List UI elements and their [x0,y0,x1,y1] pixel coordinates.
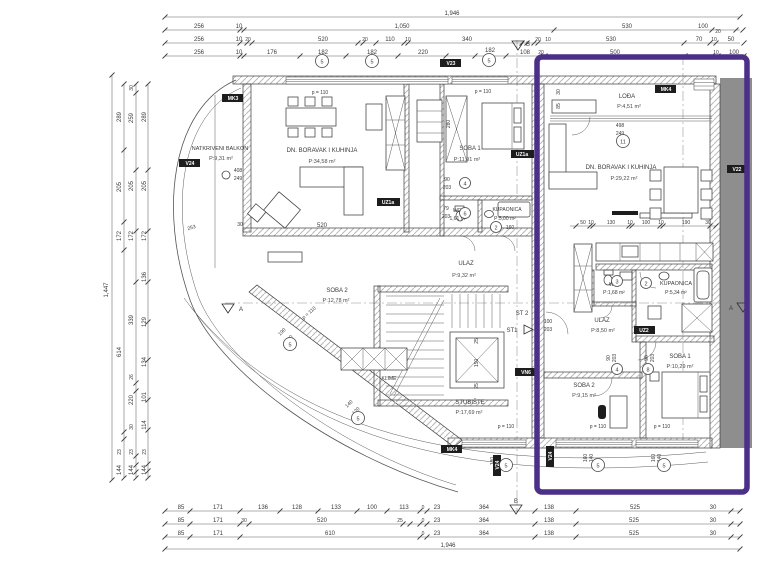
wardrobe [386,96,405,170]
dim-label: 10 [236,24,243,30]
room-area: P:12,78 m² [323,298,350,304]
dim-label: 10 [545,37,551,43]
dim-label: 520 [318,37,329,43]
room-name: DN. BORAVAK I KUHINJA [586,165,657,171]
dim-label: 23 [117,449,123,455]
svg-text:5: 5 [487,59,490,65]
ref-circle: 5 [316,55,329,68]
bottom-dimension-labels: 85 171 136 128 133 100 113 0 23 364 138 … [178,505,717,549]
svg-text:MK4: MK4 [661,87,672,93]
room-label-stubiste: STUBIŠTE P:17,69 m² [455,399,484,416]
room-name: SOBA 1 [459,146,481,152]
room-area: P:1,68 m² [603,290,625,296]
kitchen-dim-labels: 50 10 130 10 100 10 190 30 [580,220,711,226]
dim-label: 23 [129,449,135,455]
parapet-note: p = 110 [475,89,492,95]
dim-label: 408 [234,168,243,174]
inner-annotations: 30 520 408 249 498 249 280 90 203 79 203… [187,89,671,465]
room-area: P:8,50 m² [591,328,615,334]
room-name: ULAZ [594,318,610,324]
ref-circle: 6 [460,208,471,219]
ref-circle: 5 [500,459,513,472]
svg-text:MK4: MK4 [447,447,458,453]
room-name: KUPAONICA [492,207,522,213]
dim-label: 113 [399,505,409,511]
dim-label: 10 [236,50,243,56]
room-name: LOĐA [619,94,635,100]
dim-label: 176 [267,50,278,56]
svg-text:5: 5 [356,417,359,423]
dim-label: 0 [422,531,425,537]
svg-text:2: 2 [494,226,497,232]
ref-circle: 5 [658,459,671,472]
svg-text:A: A [239,307,243,313]
svg-text:A: A [729,306,733,312]
dim-label: 100 [642,220,651,226]
dim-label: 30 [237,222,243,228]
media-bench [640,213,692,218]
dining-table [286,108,336,126]
dim-label: 256 [194,37,205,43]
svg-text:5: 5 [320,60,323,66]
svg-text:B: B [526,42,530,48]
section-marker-a-left: A [222,304,243,313]
dim-label: 280 [446,120,452,129]
tag-mk4-bottom: MK4 [441,445,462,453]
ref-circle: 5 [284,338,297,351]
parapet-note: p = 110 [654,424,671,430]
window [286,77,448,84]
dim-label: 249 [234,176,243,182]
room-area: P:29,22 m² [611,176,638,182]
dim-label: 30 [710,531,717,537]
dim-label: 256 [194,24,205,30]
room-name: ULAZ [458,261,474,267]
dim-label: 23 [434,518,441,524]
dim-label: 144 [117,464,123,475]
dining-table [664,167,698,213]
dim-label: 90 [444,177,450,183]
dim-label: 85 [178,518,185,524]
dim-label: 100 [698,24,709,30]
furniture-left-apartment [248,96,530,262]
room-label-soba2-right: SOBA 2 P:9,15 m² [572,383,596,399]
svg-text:V24: V24 [548,451,554,460]
svg-text:8: 8 [646,368,649,374]
dim-label: 340 [462,37,473,43]
ref-circle: 5 [483,54,496,67]
stair-flight-markers: ST 2 ST1 [506,311,533,334]
dim-label: 133 [331,505,342,511]
dim-label: 30 [710,518,717,524]
dim-label: 10 [627,220,633,226]
room-area: P:5,34 m² [665,290,687,296]
klime-closet [341,348,407,370]
svg-text:3: 3 [615,280,618,286]
tag-uz1a-b: UZ1a [511,150,534,158]
dim-label: 50 [728,37,735,43]
room-name: KUPAONICA [660,281,692,287]
dim-label: 364 [479,518,490,524]
dim-label: 203 [650,354,656,363]
dim-label: 114 [142,420,148,430]
room-name: SOBA 2 [326,288,348,294]
dim-label: 220 [129,394,135,405]
dim-label: 26 [129,374,135,380]
dim-label: 20 [245,37,251,43]
dim-label: 30 [129,424,135,430]
dim-label: 253 [187,224,197,232]
room-label-ulaz-left: ULAZ P:9,32 m² [452,261,476,279]
dim-label: 136 [258,505,269,511]
dim-label: 289 [142,111,148,122]
dim-label: 203 [544,327,553,333]
bed-right [650,372,710,418]
dim-label: 10 [588,220,594,226]
room-area: P:9,31 m² [209,156,233,162]
dim-label: 23 [434,505,441,511]
tag-mk4-top: MK4 [655,85,676,93]
tag-uz1a-a: UZ1a [377,198,400,206]
bed-left [482,103,524,149]
parapet-note: p = 110 [312,90,329,96]
dim-label: 85 [178,505,185,511]
dim-label: 171 [213,531,224,537]
dim-label: 101 [142,391,148,402]
dim-label: 1,946 [440,543,456,549]
dim-label: 50 [580,220,586,226]
room-area: P:5,00 m² [494,216,516,222]
sofa-seat [549,172,597,189]
floor-plan-drawing: 1,946 256 10 1,050 530 100 20 256 10 20 … [0,0,758,564]
dim-label: 70 [696,37,703,43]
left-dimension-labels: 1,447 289 205 172 614 23 144 30 259 205 … [104,85,148,475]
ref-circle: 5 [592,459,605,472]
dim-label: 203 [612,354,618,363]
dim-label: 259 [129,112,135,123]
window [694,79,714,90]
dim-label: 1,447 [104,282,110,298]
svg-text:4: 4 [615,368,618,374]
room-name: DN. BORAVAK I KUHINJA [287,148,358,154]
room-label-soba1-right: SOBA 1 P:10,29 m² [667,354,694,370]
dim-label: 10 [405,37,411,43]
dim-label: 129 [142,316,148,327]
dim-label: 10 [711,37,717,43]
dim-label: 23 [434,531,441,537]
tv-bench [268,252,302,262]
dim-label: 30 [241,518,247,524]
section-marker-b-top: B [512,41,530,50]
svg-text:5: 5 [662,464,665,470]
dim-label: 136 [142,271,148,282]
dim-label: 85 [178,531,185,537]
dim-label: 25 [474,383,480,389]
svg-text:UZ1a: UZ1a [516,152,528,158]
dim-label: 0 [422,505,425,511]
room-name: SOBA 2 [573,383,595,389]
top-dimension-labels: 1,946 256 10 1,050 530 100 20 256 10 20 … [194,11,740,56]
dim-label: 520 [317,518,328,524]
floor-plan-page: 1,946 256 10 1,050 530 100 20 256 10 20 … [0,0,758,564]
room-name: SOBA 1 [669,354,691,360]
dim-label: 190 [682,220,691,226]
svg-text:4: 4 [463,182,466,188]
room-label-ulaz-right: ULAZ P:8,50 m² [591,318,615,334]
hall-closet [574,244,592,312]
dim-label: 205 [129,180,135,191]
dim-label: 10 [658,220,664,226]
room-area: P:17,69 m² [456,410,483,416]
dim-label: 498 [616,123,625,129]
window [636,440,698,447]
dim-label: 25 [397,518,403,524]
svg-text:V22: V22 [733,167,742,173]
window [452,77,508,84]
dim-label: 30 [710,505,717,511]
svg-text:V23: V23 [447,61,456,67]
svg-text:UZ2: UZ2 [639,328,649,334]
svg-text:6: 6 [463,212,466,218]
dim-label: 138 [544,518,555,524]
dim-label: 130 [607,220,616,226]
dim-label: 339 [129,314,135,325]
parapet-note: p = 110 [301,305,318,320]
dim-label: 182 [485,48,496,54]
dim-label: 85 [556,103,562,109]
svg-text:5: 5 [370,60,373,66]
room-label-klime: KLIME [381,376,397,382]
ref-circle: 5 [352,412,365,425]
ref-circle: 4 [460,178,471,189]
dim-label: 525 [629,531,640,537]
dim-label: 134 [142,356,148,367]
svg-text:ST1: ST1 [506,328,518,334]
dim-label: 20 [535,37,541,43]
ref-circle: 8 [643,364,654,375]
ref-circle: 2 [491,222,502,233]
dim-label: 144 [129,464,135,475]
dim-label: 10 [236,37,243,43]
staircase [386,294,500,396]
tag-mk3: MK3 [222,94,243,102]
dim-label: 100 [544,319,553,325]
tag-v24-bottom-b: V24 [546,446,554,467]
ref-circle: 4 [612,364,623,375]
ref-circle: 11 [617,135,630,148]
dim-label: 190 [277,327,287,337]
dim-label: 108 [520,50,531,56]
dim-label: 220 [418,50,429,56]
dim-label: 525 [629,518,640,524]
room-area: P:11,91 m² [454,157,481,163]
dim-label: 30 [556,89,562,95]
kitchen-counter [596,243,713,261]
dim-label: 0 [422,518,425,524]
bathroom-right-fixtures [648,268,712,332]
ref-circle: 2 [641,278,652,289]
tag-v24-balcony: V24 [179,159,200,167]
dim-label: 20 [715,29,721,35]
dim-label: 1,946 [444,11,460,17]
dim-label: 1,050 [394,24,410,30]
dim-label: 30 [705,220,711,226]
dim-label: 364 [479,531,490,537]
dim-label: 140 [344,399,354,409]
svg-text:5: 5 [288,343,291,349]
dim-label: 205 [142,180,148,191]
dim-label: 525 [630,505,641,511]
dim-label: 171 [213,518,224,524]
fridge [366,104,382,130]
room-label-living-left: DN. BORAVAK I KUHINJA P:34,58 m² [287,148,358,165]
window [462,440,526,447]
ref-circle: 5 [366,55,379,68]
section-marker-b-bottom: B [510,499,522,514]
room-label-soba2-left: SOBA 2 P:12,78 m² [323,288,350,304]
level-marker-icon [222,171,230,179]
room-label-lodja: LOĐA P:4,51 m² [617,94,641,110]
dim-label: 100 [367,505,378,511]
dim-label: 25 [474,338,480,344]
dim-label: 110 [385,37,395,43]
tv [612,211,638,215]
dim-label: 289 [117,111,123,122]
svg-text:V24: V24 [186,161,195,167]
svg-text:5: 5 [596,464,599,470]
dim-label: 530 [606,37,617,43]
dim-label: 203 [443,185,452,191]
room-label-balkon: NATKRIVENI BALKON P:9,31 m² [192,146,248,162]
dim-label: 171 [213,505,224,511]
dim-label: 256 [194,50,205,56]
dim-label: 520 [317,223,328,229]
room-area: P:34,58 m² [309,159,336,165]
room-area: P:9,32 m² [452,273,476,279]
sofa-chaise [344,167,363,215]
tag-uz2: UZ2 [634,326,655,334]
room-area: P:9,15 m² [572,393,596,399]
dim-label: 610 [325,531,336,537]
dim-label: 172 [129,230,135,241]
parapet-note: p = 110 [590,424,607,430]
window [556,440,632,447]
svg-text:ST 2: ST 2 [516,311,529,317]
dim-label: 364 [479,505,490,511]
room-name: NATKRIVENI BALKON [192,146,248,152]
svg-text:2: 2 [644,282,647,288]
svg-text:5: 5 [504,464,507,470]
dim-label: 30 [129,85,135,91]
room-area: P:4,51 m² [617,104,641,110]
room-area: P:10,29 m² [667,364,694,370]
dim-label: 172 [142,230,148,241]
shelf [417,100,442,142]
dim-label: 530 [622,24,633,30]
dim-label: 144 [142,464,148,475]
dim-label: 23 [142,449,148,455]
ref-circle: 3 [612,276,623,287]
dim-label: 205 [117,181,123,192]
room-name: STUBIŠTE [455,399,484,406]
room-label-kupaonica-right: KUPAONICA P:5,34 m² [660,281,692,296]
dim-label: 20 [362,37,368,43]
dim-label: 138 [544,505,555,511]
desk-chair [598,405,606,419]
svg-text:VN6: VN6 [521,370,531,376]
dim-label: 79 [443,206,449,212]
svg-text:MK3: MK3 [228,96,239,102]
dim-label: 138 [544,531,555,537]
svg-text:B: B [514,499,518,505]
svg-text:11: 11 [620,140,626,146]
tag-v23: V23 [440,59,461,67]
dim-label: 160 [506,225,515,231]
dim-label: 128 [292,505,303,511]
tag-vn6: VN6 [515,368,536,376]
dim-label: 150 [474,359,480,368]
svg-text:UZ1a: UZ1a [382,200,394,206]
dim-label: 614 [117,346,123,357]
parapet-note: p = 110 [498,424,515,430]
dim-label: 172 [117,230,123,241]
